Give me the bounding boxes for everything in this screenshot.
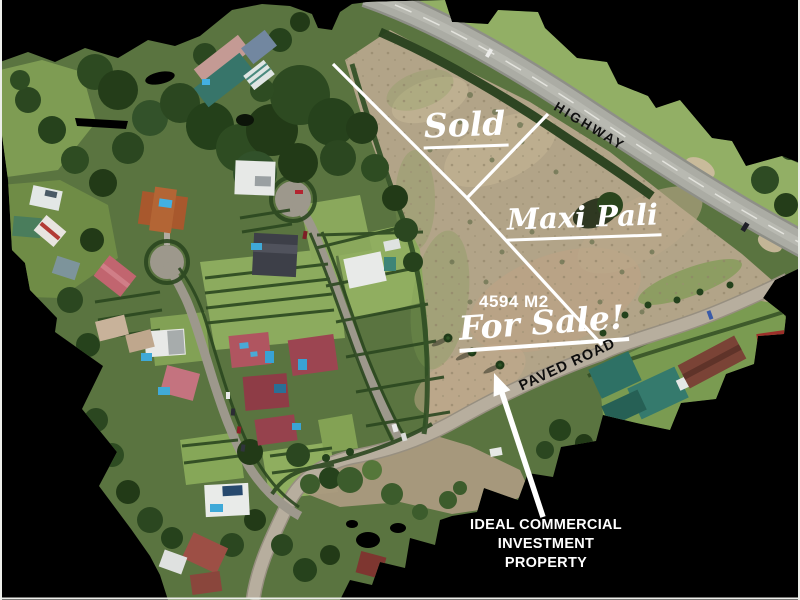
investment-note-line2: INVESTMENT — [452, 535, 640, 554]
investment-note-line1: IDEAL COMMERCIAL — [452, 516, 640, 535]
aerial-photo-canvas — [0, 0, 800, 600]
aerial-property-photo: Sold HIGHWAY Maxi Pali 4594 M2 For Sale!… — [0, 0, 800, 600]
investment-note: IDEAL COMMERCIAL INVESTMENT PROPERTY — [452, 516, 640, 573]
investment-note-line3: PROPERTY — [452, 554, 640, 573]
maxi-pali-label: Maxi Pali — [505, 200, 661, 241]
sold-label: Sold — [422, 107, 509, 150]
